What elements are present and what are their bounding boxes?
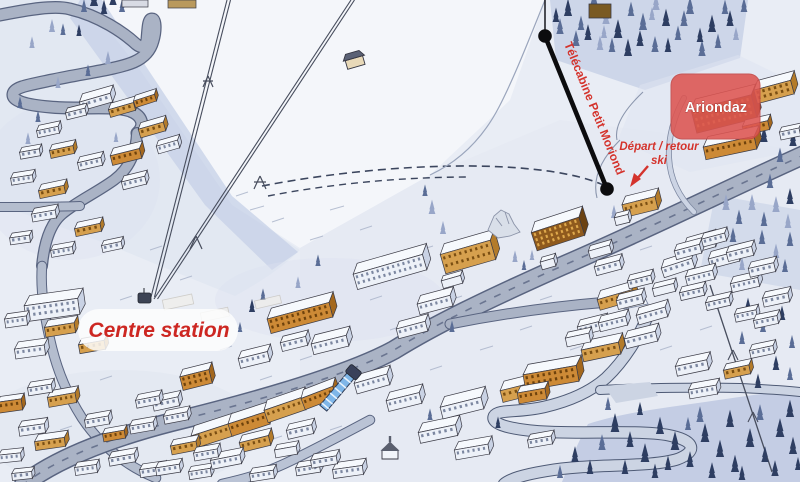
svg-text:Ariondaz: Ariondaz (685, 100, 747, 116)
svg-text:Départ / retour: Départ / retour (619, 141, 699, 153)
svg-text:Centre station: Centre station (88, 319, 229, 342)
svg-text:ski: ski (651, 155, 668, 167)
